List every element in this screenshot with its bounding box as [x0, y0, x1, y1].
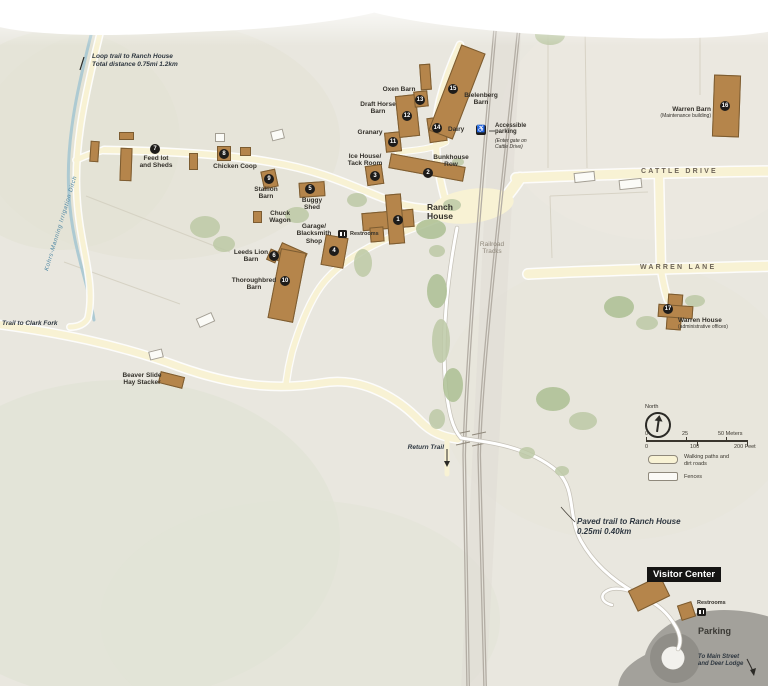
- chuck-wagon-label: Chuck Wagon: [263, 210, 297, 225]
- trail-to-clark-fork-label: Trail to Clark Fork: [2, 320, 72, 328]
- draft-horse-barn-label: Draft Horse Barn: [354, 101, 402, 116]
- granary-badge: 11: [388, 137, 398, 147]
- return-trail-label: Return Trail: [400, 444, 444, 452]
- thoroughbred-barn-badge: 10: [280, 276, 290, 286]
- scale-tick: [646, 437, 647, 441]
- parking-label: Parking: [698, 626, 731, 636]
- ranch-house-badge: 1: [393, 215, 403, 225]
- legend-walking-label: Walking paths and dirt roads: [684, 454, 729, 467]
- granary-label: Granary: [350, 129, 390, 136]
- dairy-badge: 14: [432, 123, 442, 133]
- warren-house-label: Warren House (administrative offices): [678, 310, 736, 338]
- ice-house-badge: 3: [370, 171, 380, 181]
- scale-f-0: 0: [645, 444, 648, 450]
- feed-lot-shed-1: [89, 141, 99, 163]
- restrooms-historic-label: Restrooms: [350, 231, 379, 237]
- legend-walking-swatch: [648, 455, 678, 464]
- bunkhouse-row-badge: 2: [423, 168, 433, 178]
- oxen-barn-label: Oxen Barn: [378, 86, 420, 93]
- dairy-label: Dairy: [448, 126, 474, 133]
- restrooms-vc-icon: [697, 608, 706, 616]
- paved-trail-label: Paved trail to Ranch House 0.25mi 0.40km: [577, 517, 717, 536]
- warren-barn-badge: 16: [720, 101, 730, 111]
- railroad-tracks-label: Railroad Tracks: [470, 241, 514, 256]
- cattle-drive-label: CATTLE DRIVE: [641, 168, 718, 175]
- ranch-house-label: Ranch House: [414, 203, 466, 222]
- warren-barn-label: Warren Barn (Maintenance building): [655, 99, 711, 127]
- stallion-barn-badge: 9: [264, 174, 274, 184]
- scale-f-100: 100: [690, 444, 699, 450]
- warren-lane-label: WARREN LANE: [640, 264, 716, 271]
- leeds-lion-barn-label: Leeds Lion Barn: [231, 249, 271, 264]
- feed-lot-shed-4: [189, 153, 198, 170]
- accessible-parking-note: (Enter gate on Cattle Drive): [495, 138, 527, 150]
- chicken-coop-shed: [240, 147, 251, 156]
- loop-trail-label: Loop trail to Ranch House Total distance…: [92, 53, 212, 69]
- bielenberg-barn-label: Bielenberg Barn: [458, 92, 504, 107]
- stallion-barn-label: Stallion Barn: [246, 186, 286, 201]
- parking-lot: [618, 610, 768, 686]
- scale-bar: 0 25 50 Meters 0 100 200 Feet: [646, 431, 756, 453]
- garage-blacksmith-label: Garage/ Blacksmith Shop: [292, 223, 336, 245]
- legend-fences-label: Fences: [684, 474, 702, 481]
- accessible-parking-label: Accessible parking: [495, 123, 526, 135]
- warren-house-label-sub: (administrative offices): [678, 325, 736, 331]
- feed-lot-label: Feed lot and Sheds: [128, 155, 184, 170]
- thoroughbred-barn-label: Thoroughbred Barn: [228, 277, 280, 292]
- accessible-parking-icon: ♿: [476, 125, 486, 135]
- garage-blacksmith-badge: 4: [329, 246, 339, 256]
- feed-lot-shed-2: [119, 132, 134, 140]
- ranch-site-map: 1 2 3 4 5 6 7 8 9 10 11 12 13 14 15 16 1…: [0, 0, 768, 686]
- to-main-street-label: To Main Street and Deer Lodge: [698, 654, 756, 668]
- chicken-coop-label: Chicken Coop: [203, 163, 267, 170]
- restrooms-visitor-center-label: Restrooms: [697, 600, 726, 606]
- legend-fences-swatch: [648, 472, 678, 481]
- chicken-coop-badge: 8: [219, 149, 229, 159]
- draft-horse-barn-badge: 12: [402, 111, 412, 121]
- oxen-barn-shed: [419, 64, 432, 91]
- visitor-center-label: Visitor Center: [647, 567, 721, 582]
- north-label: North: [645, 404, 658, 410]
- warren-barn-label-sub: (Maintenance building): [655, 114, 711, 120]
- oxen-barn-badge: 13: [415, 95, 425, 105]
- beaver-slide-label: Beaver Slide Hay Stacker: [116, 372, 168, 387]
- scale-f-200: 200 Feet: [734, 444, 756, 450]
- warren-house-badge: 17: [663, 304, 673, 314]
- ice-house-label: Ice House/ Tack Room: [342, 153, 388, 168]
- scale-tick: [726, 437, 727, 441]
- buggy-shed-badge: 5: [305, 184, 315, 194]
- scale-tick: [686, 437, 687, 441]
- scale-m-50: 50 Meters: [718, 431, 742, 437]
- feed-lot-badge: 7: [150, 144, 160, 154]
- compass-arrowhead: [655, 415, 664, 422]
- leeds-lion-barn-badge: 6: [269, 251, 279, 261]
- bielenberg-barn-badge: 15: [448, 84, 458, 94]
- chuck-wagon-building: [253, 211, 262, 223]
- buggy-shed-label: Buggy Shed: [294, 197, 330, 212]
- restrooms-icon: [338, 230, 347, 238]
- bunkhouse-row-label: Bunkhouse Row: [428, 154, 474, 169]
- outbuilding-1: [215, 133, 225, 142]
